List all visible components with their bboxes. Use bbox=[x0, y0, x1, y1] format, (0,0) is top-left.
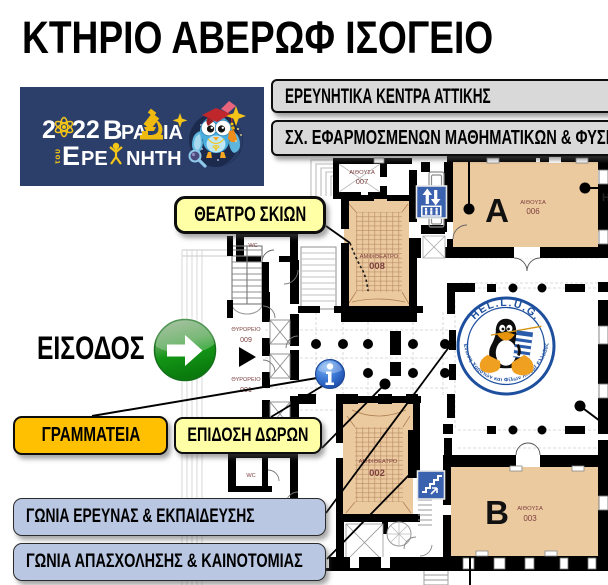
svg-text:B: B bbox=[485, 494, 509, 531]
svg-text:ΝΗΤΗ: ΝΗΤΗ bbox=[126, 148, 182, 170]
svg-text:Ε: Ε bbox=[62, 141, 80, 171]
svg-text:ΡΕ: ΡΕ bbox=[81, 148, 108, 170]
svg-text:002: 002 bbox=[369, 468, 385, 479]
svg-text:WC: WC bbox=[246, 473, 255, 479]
svg-text:009: 009 bbox=[240, 337, 252, 344]
svg-text:22: 22 bbox=[72, 116, 100, 144]
svg-text:A: A bbox=[485, 192, 509, 229]
svg-text:2: 2 bbox=[42, 116, 56, 144]
svg-text:Β: Β bbox=[103, 115, 123, 145]
svg-text:του: του bbox=[53, 148, 62, 164]
svg-text:WC: WC bbox=[248, 243, 257, 249]
svg-text:ΘΥΡΩΡΕΙΟ: ΘΥΡΩΡΕΙΟ bbox=[231, 327, 261, 333]
svg-text:008: 008 bbox=[369, 261, 385, 272]
svg-text:007: 007 bbox=[356, 177, 369, 186]
svg-text:L: L bbox=[500, 297, 507, 309]
svg-text:H: H bbox=[602, 192, 608, 204]
svg-text:ΑΙΘΟΥΣΑ: ΑΙΘΟΥΣΑ bbox=[520, 200, 546, 206]
svg-text:ΑΜΦΙΘΕΑΤΡΟ: ΑΜΦΙΘΕΑΤΡΟ bbox=[360, 254, 399, 260]
svg-text:ΘΥΡΩΡΕΙΟ: ΘΥΡΩΡΕΙΟ bbox=[231, 377, 261, 383]
svg-text:ΑΙΘΟΥΣΑ: ΑΙΘΟΥΣΑ bbox=[349, 170, 375, 176]
svg-text:006: 006 bbox=[526, 207, 540, 216]
svg-text:ΑΙΘΟΥΣΑ: ΑΙΘΟΥΣΑ bbox=[517, 506, 543, 512]
svg-text:003: 003 bbox=[523, 514, 537, 523]
